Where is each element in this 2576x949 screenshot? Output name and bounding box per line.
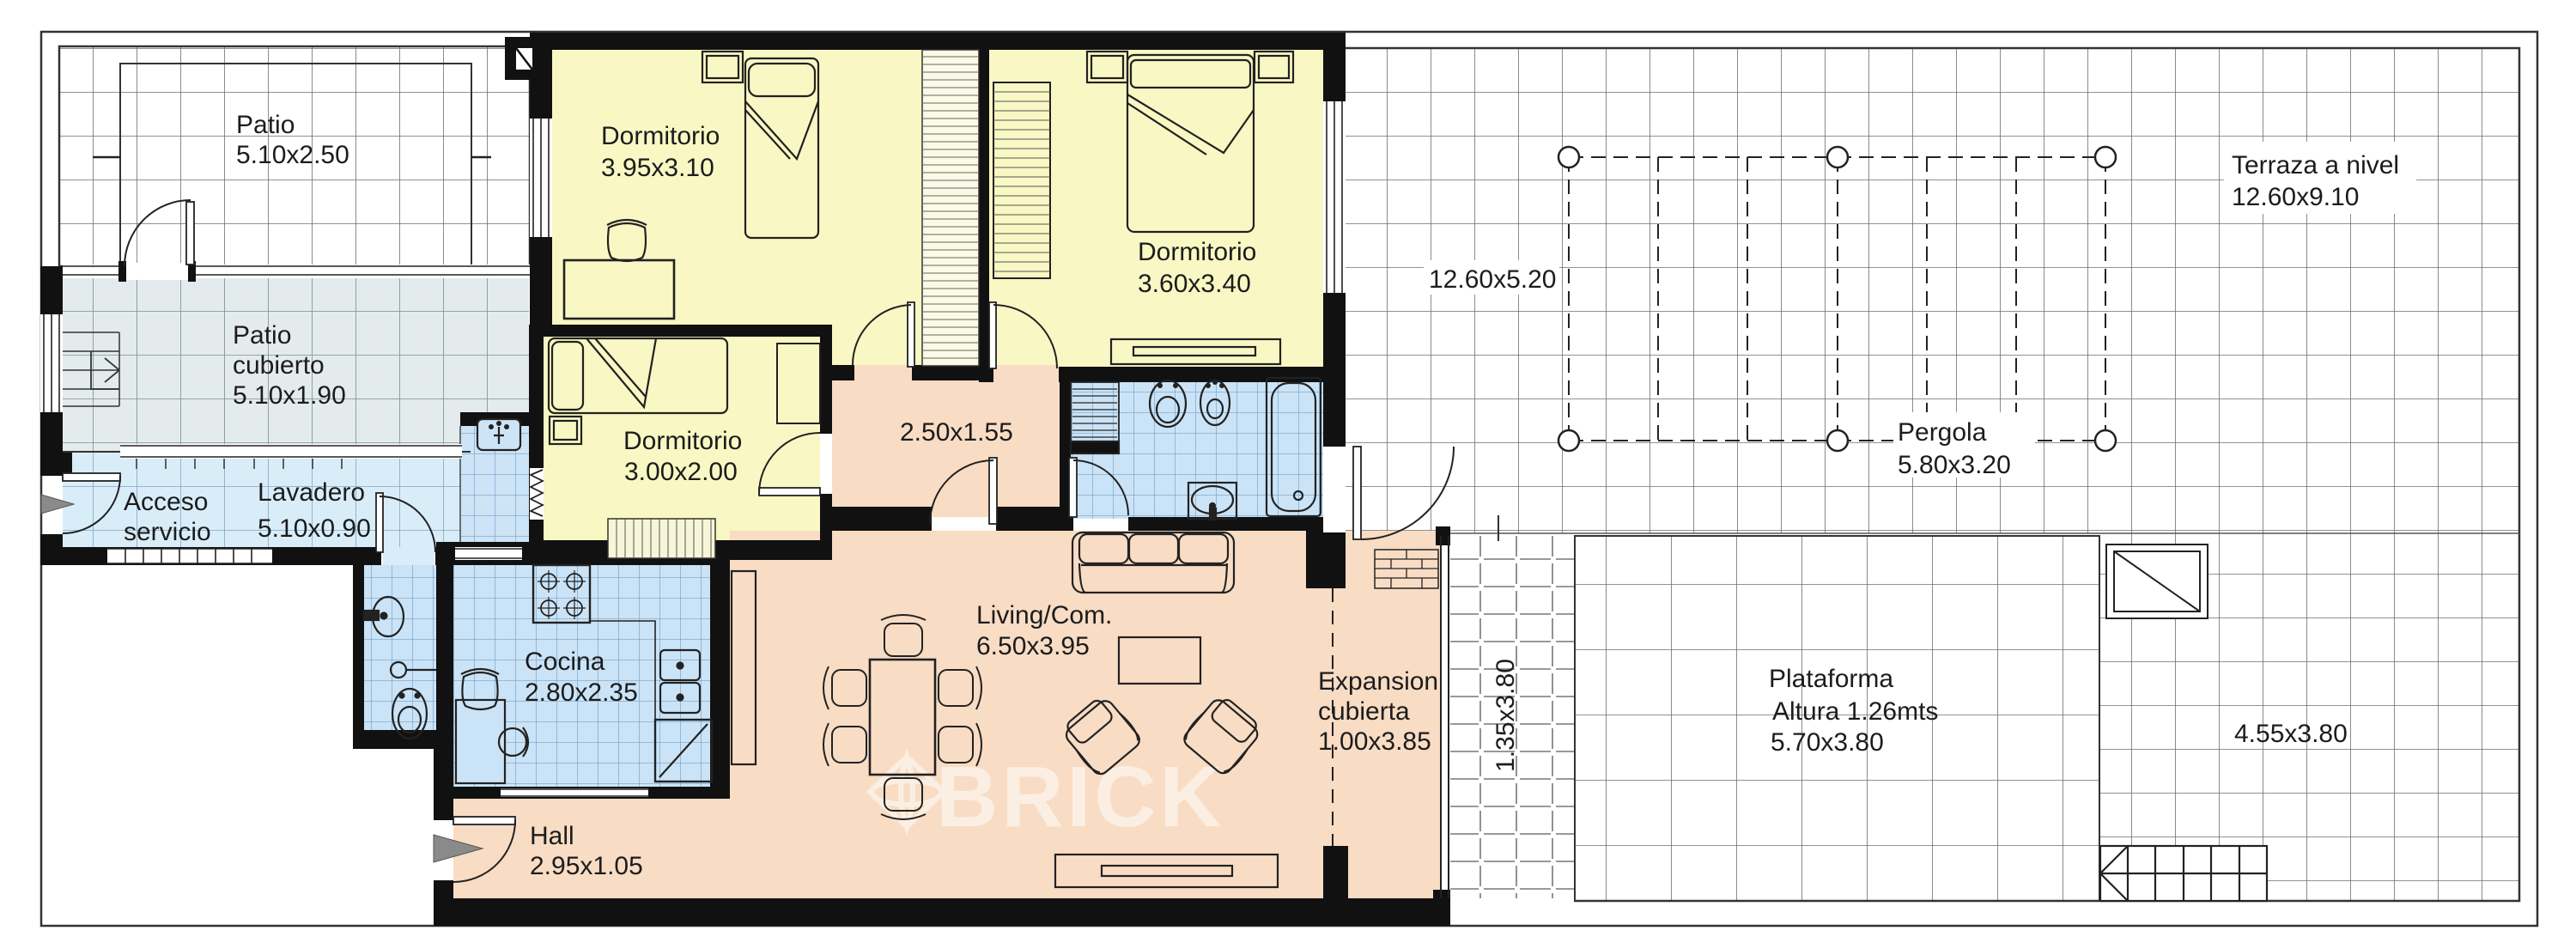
svg-text:Patio: Patio — [233, 321, 291, 350]
svg-text:servicio: servicio — [124, 518, 211, 546]
svg-text:Dormitorio: Dormitorio — [601, 122, 720, 150]
svg-text:6.50x3.95: 6.50x3.95 — [976, 632, 1090, 660]
svg-text:Patio: Patio — [236, 111, 295, 139]
svg-text:Dormitorio: Dormitorio — [623, 427, 742, 455]
svg-text:Plataforma: Plataforma — [1769, 665, 1893, 693]
svg-text:3.95x3.10: 3.95x3.10 — [601, 154, 714, 182]
svg-text:2.95x1.05: 2.95x1.05 — [530, 852, 643, 880]
svg-text:Altura 1.26mts: Altura 1.26mts — [1772, 697, 1938, 726]
svg-text:4.55x3.80: 4.55x3.80 — [2234, 720, 2348, 748]
svg-text:Cocina: Cocina — [525, 648, 605, 676]
svg-text:5.10x1.90: 5.10x1.90 — [233, 381, 346, 410]
svg-text:5.80x3.20: 5.80x3.20 — [1898, 451, 2011, 479]
svg-text:2.80x2.35: 2.80x2.35 — [525, 678, 638, 707]
svg-text:Pergola: Pergola — [1898, 418, 1987, 447]
svg-text:Hall: Hall — [530, 822, 574, 850]
svg-text:Lavadero: Lavadero — [258, 478, 365, 507]
svg-text:Dormitorio: Dormitorio — [1138, 238, 1256, 266]
svg-text:cubierto: cubierto — [233, 351, 325, 380]
svg-text:Acceso: Acceso — [124, 488, 208, 516]
svg-text:5.10x0.90: 5.10x0.90 — [258, 514, 371, 543]
svg-text:Expansion: Expansion — [1318, 667, 1438, 696]
svg-text:5.70x3.80: 5.70x3.80 — [1771, 728, 1884, 757]
svg-text:5.10x2.50: 5.10x2.50 — [236, 141, 349, 169]
svg-text:BRICK: BRICK — [936, 749, 1225, 845]
svg-text:1.35x3.80: 1.35x3.80 — [1492, 659, 1520, 772]
svg-text:2.50x1.55: 2.50x1.55 — [900, 418, 1013, 447]
svg-text:3.60x3.40: 3.60x3.40 — [1138, 270, 1251, 298]
svg-text:Terraza a nivel: Terraza a nivel — [2232, 151, 2399, 179]
svg-text:12.60x5.20: 12.60x5.20 — [1429, 265, 1556, 294]
svg-text:3.00x2.00: 3.00x2.00 — [624, 458, 738, 486]
svg-text:Living/Com.: Living/Com. — [976, 601, 1112, 630]
svg-text:12.60x9.10: 12.60x9.10 — [2232, 183, 2359, 211]
svg-text:1.00x3.85: 1.00x3.85 — [1318, 727, 1431, 756]
